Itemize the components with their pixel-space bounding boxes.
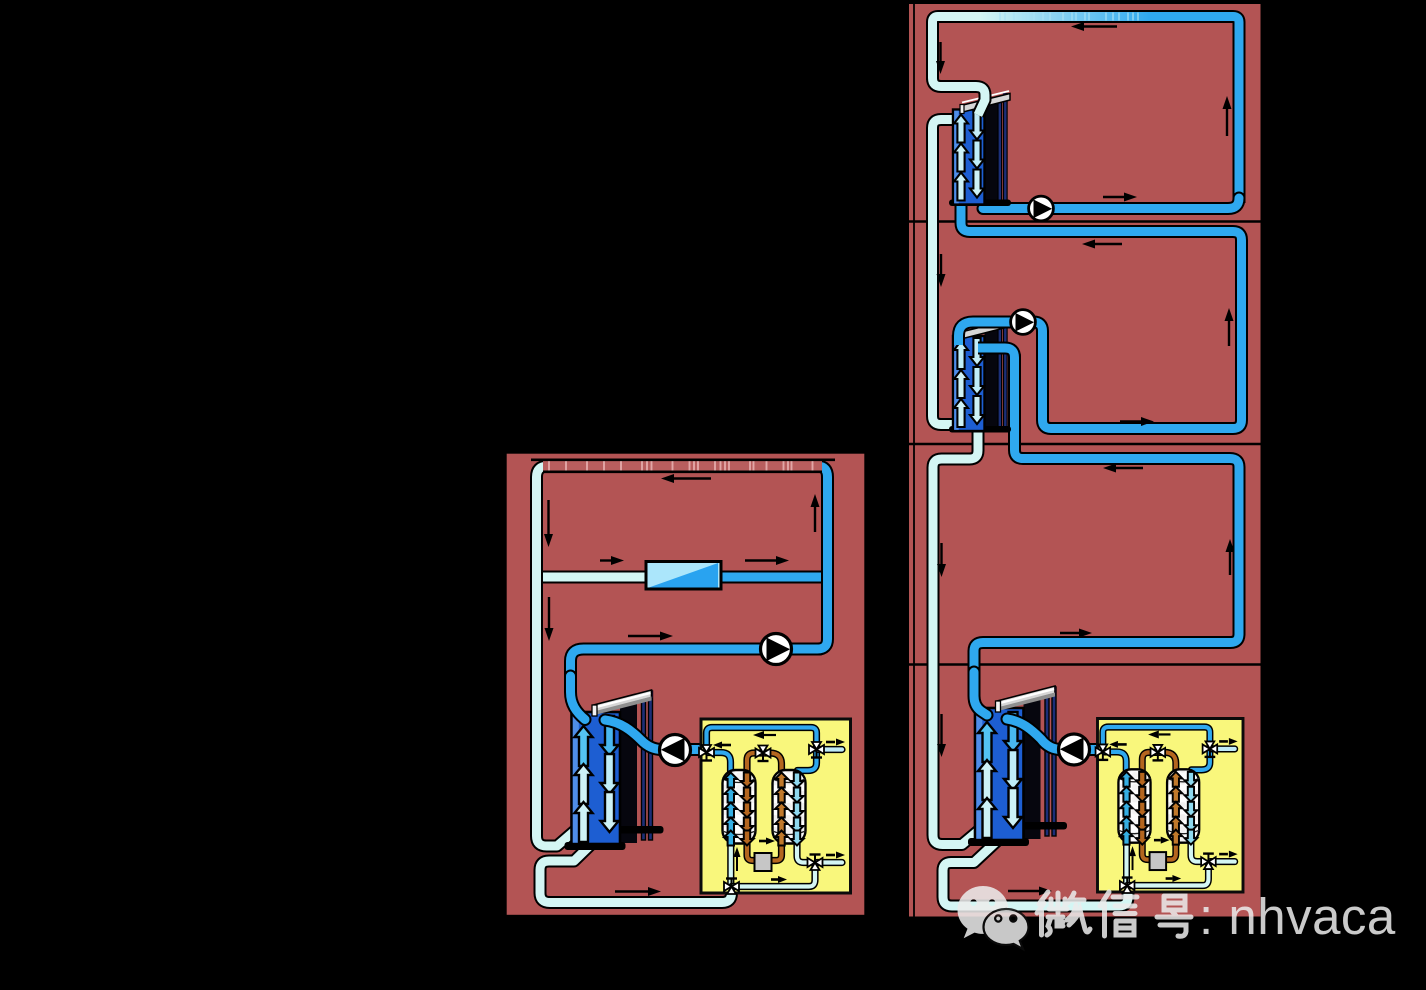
svg-text:: nhvaca: : nhvaca bbox=[1199, 888, 1396, 945]
